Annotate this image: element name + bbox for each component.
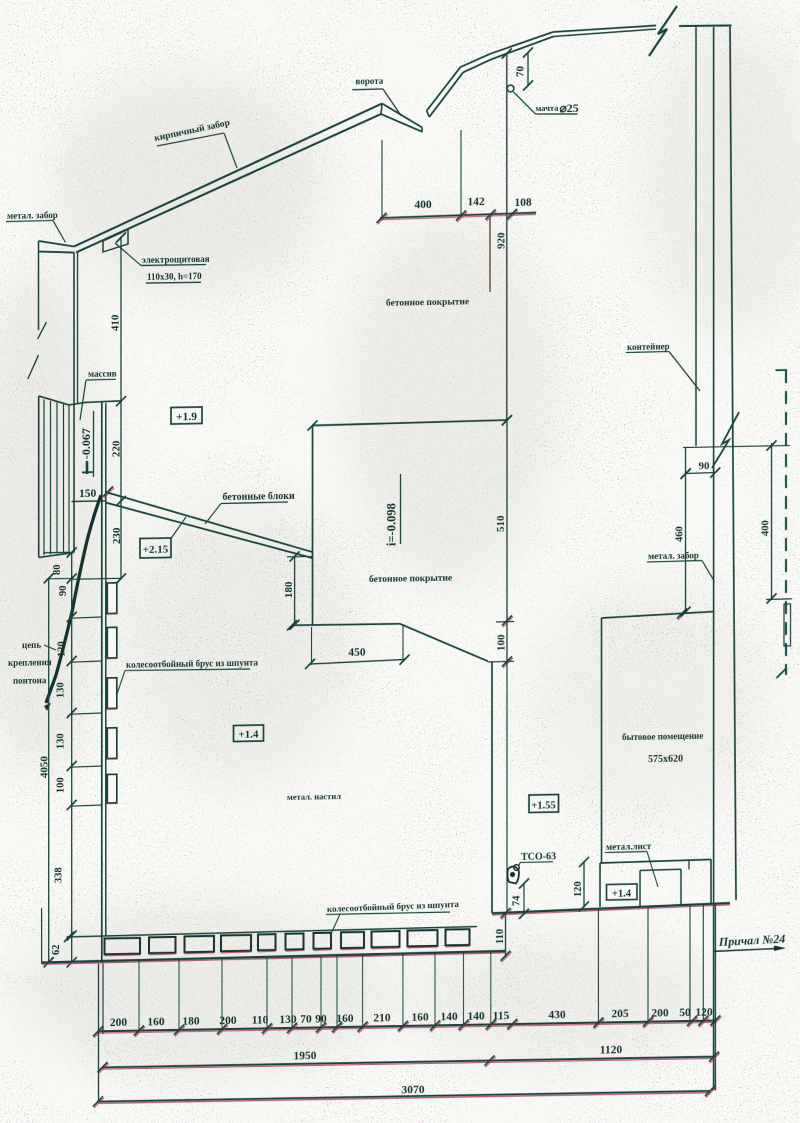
svg-text:230: 230 bbox=[111, 527, 123, 544]
svg-text:160: 160 bbox=[147, 1016, 164, 1028]
svg-text:100: 100 bbox=[56, 777, 67, 793]
svg-text:510: 510 bbox=[495, 515, 507, 532]
svg-text:цепь: цепь bbox=[22, 640, 41, 650]
svg-text:460: 460 bbox=[675, 526, 686, 542]
svg-text:140: 140 bbox=[467, 1011, 484, 1023]
svg-text:180: 180 bbox=[283, 581, 295, 598]
svg-text:70: 70 bbox=[300, 1014, 312, 1026]
svg-text:+2.15: +2.15 bbox=[143, 544, 169, 556]
svg-text:100: 100 bbox=[496, 634, 508, 651]
svg-text:ворота: ворота bbox=[356, 76, 384, 86]
svg-text:160: 160 bbox=[336, 1013, 353, 1025]
svg-text:+1.55: +1.55 bbox=[531, 800, 555, 811]
svg-text:i=-0.098: i=-0.098 bbox=[385, 503, 399, 546]
svg-text:4050: 4050 bbox=[39, 755, 51, 778]
svg-text:110х30, h=170: 110х30, h=170 bbox=[147, 271, 202, 282]
svg-text:220: 220 bbox=[111, 440, 123, 457]
svg-text:метал. настил: метал. настил bbox=[287, 791, 341, 802]
svg-text:200: 200 bbox=[110, 1017, 127, 1029]
svg-text:410: 410 bbox=[110, 314, 122, 331]
svg-text:120: 120 bbox=[573, 881, 584, 897]
svg-text:205: 205 bbox=[611, 1008, 628, 1020]
svg-text:160: 160 bbox=[411, 1012, 428, 1024]
svg-text:210: 210 bbox=[373, 1012, 390, 1024]
svg-text:-0.067: -0.067 bbox=[79, 428, 93, 459]
svg-text:+1.9: +1.9 bbox=[176, 411, 197, 423]
svg-text:90: 90 bbox=[699, 460, 710, 472]
svg-text:338: 338 bbox=[54, 867, 65, 883]
svg-text:понтона: понтона bbox=[13, 675, 47, 686]
svg-text:70: 70 bbox=[515, 65, 527, 77]
svg-text:62: 62 bbox=[51, 944, 62, 955]
svg-text:+1.4: +1.4 bbox=[612, 888, 632, 899]
svg-text:108: 108 bbox=[514, 197, 531, 209]
svg-text:метал. забор: метал. забор bbox=[7, 210, 58, 221]
svg-text:контейнер: контейнер bbox=[627, 341, 670, 352]
svg-text:130: 130 bbox=[279, 1014, 296, 1026]
svg-text:бытовое помещение: бытовое помещение bbox=[622, 731, 703, 742]
svg-text:50: 50 bbox=[679, 1007, 691, 1019]
svg-text:130: 130 bbox=[56, 733, 67, 749]
svg-text:400: 400 bbox=[761, 520, 772, 536]
svg-text:120: 120 bbox=[57, 641, 68, 657]
svg-text:180: 180 bbox=[182, 1016, 199, 1028]
svg-text:1950: 1950 bbox=[294, 1050, 317, 1062]
svg-text:массив: массив bbox=[88, 369, 117, 380]
svg-text:⌀25: ⌀25 bbox=[560, 101, 579, 115]
svg-text:430: 430 bbox=[548, 1009, 565, 1021]
svg-text:450: 450 bbox=[348, 647, 365, 659]
svg-text:3070: 3070 bbox=[402, 1084, 425, 1096]
svg-text:90: 90 bbox=[58, 585, 69, 596]
svg-text:бетонное покрытие: бетонное покрытие bbox=[386, 297, 469, 309]
svg-text:150: 150 bbox=[79, 488, 96, 500]
svg-text:бетонное покрытие: бетонное покрытие bbox=[369, 573, 452, 585]
svg-text:110: 110 bbox=[252, 1014, 269, 1026]
svg-text:120: 120 bbox=[695, 1007, 712, 1019]
svg-text:+1.4: +1.4 bbox=[238, 728, 259, 740]
svg-text:575х620: 575х620 bbox=[648, 753, 683, 765]
svg-text:142: 142 bbox=[467, 196, 484, 208]
svg-text:400: 400 bbox=[414, 199, 431, 211]
svg-text:200: 200 bbox=[651, 1007, 668, 1019]
svg-text:140: 140 bbox=[440, 1011, 457, 1023]
svg-text:бетонные блоки: бетонные блоки bbox=[223, 491, 295, 503]
svg-text:110: 110 bbox=[495, 929, 506, 944]
svg-text:1120: 1120 bbox=[600, 1044, 623, 1056]
svg-text:74: 74 bbox=[512, 895, 523, 906]
svg-text:метал. забор: метал. забор bbox=[648, 550, 699, 561]
svg-text:крепления: крепления bbox=[8, 657, 52, 668]
svg-text:электрощитовая: электрощитовая bbox=[142, 254, 210, 265]
svg-text:920: 920 bbox=[496, 232, 508, 249]
svg-text:метал.лист: метал.лист bbox=[606, 841, 652, 852]
svg-text:мачта: мачта bbox=[536, 103, 560, 113]
svg-text:130: 130 bbox=[56, 682, 67, 698]
svg-text:115: 115 bbox=[493, 1010, 510, 1022]
